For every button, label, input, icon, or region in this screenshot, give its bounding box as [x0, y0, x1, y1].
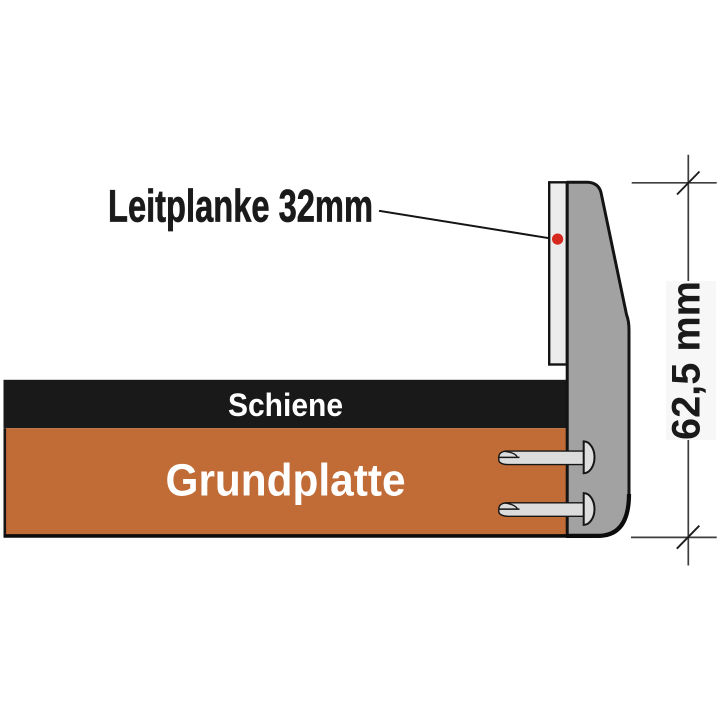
svg-text:Leitplanke 32mm: Leitplanke 32mm	[108, 181, 373, 232]
svg-text:Schiene: Schiene	[228, 387, 343, 423]
svg-text:Grundplatte: Grundplatte	[166, 455, 406, 506]
svg-text:62,5 mm: 62,5 mm	[665, 281, 709, 440]
